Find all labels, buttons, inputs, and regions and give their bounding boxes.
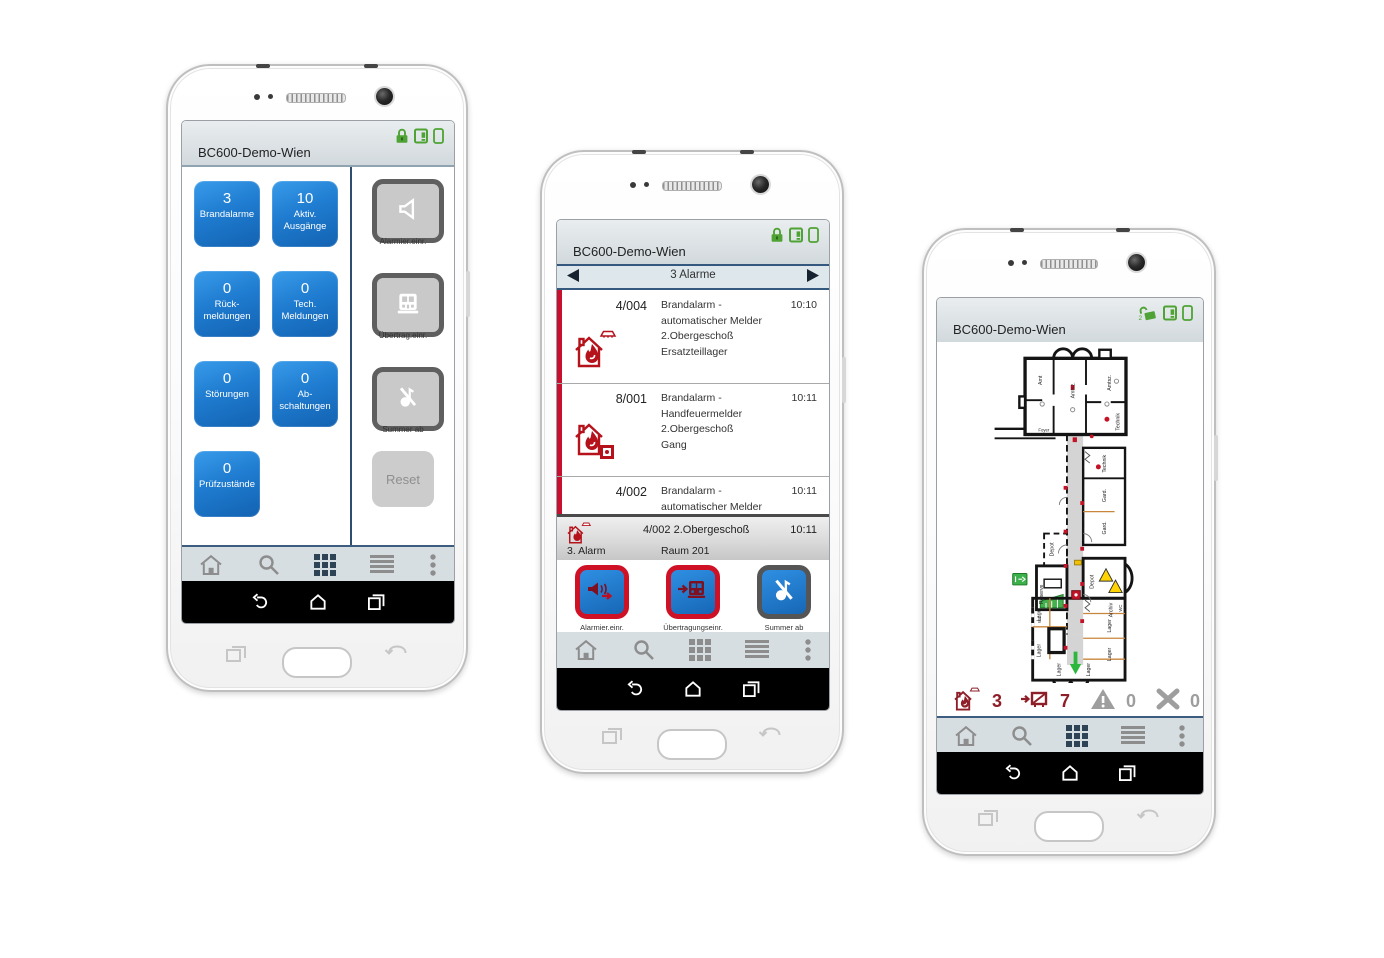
- search-icon[interactable]: [1010, 724, 1034, 748]
- earpiece-speaker: [662, 181, 722, 191]
- room-label: Foyer: [1038, 428, 1049, 433]
- detail-location: 4/002 2.Obergeschoß: [643, 524, 749, 536]
- android-navigation-bar: [182, 581, 454, 623]
- home-icon[interactable]: [198, 553, 224, 577]
- recents-key: [600, 726, 624, 746]
- room-label: Lager: [1036, 644, 1042, 658]
- overflow-menu-icon[interactable]: [428, 553, 438, 577]
- back-key: [384, 644, 410, 662]
- alarm-pager: 3 Alarme: [557, 264, 829, 290]
- app-title: BC600-Demo-Wien: [953, 322, 1066, 337]
- bottom-toolbar: [557, 632, 829, 668]
- room-label: Depot: [1050, 542, 1056, 556]
- grid-view-icon[interactable]: [313, 553, 337, 577]
- alarmier-einr-label: Alarmier.einr.: [358, 237, 448, 246]
- antenna-band: [632, 150, 646, 154]
- room-label: Lager: [1056, 663, 1062, 677]
- phone3-screen: BC600-Demo-Wien 2: [936, 297, 1204, 795]
- light-sensor: [268, 94, 273, 99]
- transmission-device-icon: [394, 290, 422, 321]
- buzzer-off-icon: [395, 384, 421, 415]
- antenna-band: [256, 64, 270, 68]
- antenna-band: [1116, 228, 1130, 232]
- proximity-sensor: [1008, 260, 1014, 266]
- lock-open-icon: 2: [1138, 305, 1158, 326]
- app-header: BC600-Demo-Wien: [182, 121, 454, 167]
- front-camera: [376, 88, 393, 105]
- room-label: Archiv: [1109, 602, 1115, 617]
- home-icon[interactable]: [1060, 763, 1080, 783]
- recents-key: [976, 808, 1000, 828]
- android-navigation-bar: [557, 668, 829, 710]
- pager-title: 3 Alarme: [557, 269, 829, 281]
- warning-count: 0: [1126, 691, 1136, 712]
- alarm-list-item[interactable]: 4/002 Brandalarm -automatischer Melder 1…: [557, 476, 829, 514]
- home-icon[interactable]: [953, 724, 979, 748]
- room-label: Gard.: [1102, 521, 1108, 534]
- panel-icon: [1163, 305, 1177, 326]
- alarm-list: 4/004 Brandalarm -automatischer Melder 2…: [557, 290, 829, 514]
- back-key: [1136, 808, 1162, 826]
- reset-button[interactable]: Reset: [372, 451, 434, 507]
- lock-closed-icon: [770, 227, 784, 248]
- room-label: Gard.: [1102, 489, 1108, 502]
- alarm-device-active-icon: [585, 575, 619, 610]
- summer-ab-button[interactable]: [757, 565, 811, 619]
- room-label: Lager: [1036, 608, 1042, 622]
- uebertrag-einr-label: Übertrag.einr.: [358, 331, 448, 340]
- phone-icon: [1182, 305, 1193, 326]
- phone-icon: [808, 227, 819, 248]
- panel-divider: [350, 167, 352, 545]
- detail-alarm-number: 3. Alarm: [567, 545, 606, 557]
- tile-pruefzustaende[interactable]: 0 Prüfzustände: [194, 451, 260, 517]
- front-camera: [752, 176, 769, 193]
- app-title: BC600-Demo-Wien: [573, 244, 686, 259]
- app-header: BC600-Demo-Wien: [557, 220, 829, 266]
- power-button: [842, 357, 846, 403]
- home-icon[interactable]: [683, 679, 703, 699]
- back-icon[interactable]: [1003, 763, 1023, 783]
- buzzer-off-icon: [770, 576, 798, 609]
- tile-tech-meldungen[interactable]: 0 Tech.Meldungen: [272, 271, 338, 337]
- phone-mockup-1: BC600-Demo-Wien 3 Brandalarme 10 Aktiv.A…: [166, 64, 468, 692]
- summer-ab-button[interactable]: [372, 367, 444, 431]
- fire-house-callpoint-icon: [573, 421, 621, 468]
- summer-ab-label: Summer ab: [738, 623, 830, 632]
- back-icon[interactable]: [625, 679, 645, 699]
- tile-aktive-ausgaenge[interactable]: 10 Aktiv.Ausgänge: [272, 181, 338, 247]
- proximity-sensor: [254, 94, 260, 100]
- list-view-icon[interactable]: [1120, 724, 1146, 748]
- alarm-id: 8/001: [585, 392, 647, 406]
- home-button-hardware: [657, 729, 727, 760]
- svg-text:2: 2: [1139, 315, 1143, 321]
- back-key: [758, 726, 784, 744]
- room-label: Technik: [1102, 454, 1108, 472]
- phone-mockup-3: BC600-Demo-Wien 2: [922, 228, 1216, 856]
- earpiece-speaker: [286, 93, 346, 103]
- tile-stoerungen[interactable]: 0 Störungen: [194, 361, 260, 427]
- panel-icon: [789, 227, 803, 248]
- transmission-count: 7: [1060, 691, 1070, 712]
- light-sensor: [644, 182, 649, 187]
- app-title: BC600-Demo-Wien: [198, 145, 311, 160]
- light-sensor: [1022, 260, 1027, 265]
- floor-plan-map[interactable]: Amt Amtsz. Amtsz. Foyer Technik Technik …: [937, 342, 1203, 686]
- proximity-sensor: [630, 182, 636, 188]
- floor-plan-svg: Amt Amtsz. Amtsz. Foyer Technik Technik …: [983, 345, 1169, 683]
- overflow-menu-icon[interactable]: [803, 638, 813, 662]
- antenna-band: [740, 150, 754, 154]
- alarm-device-icon: [393, 196, 423, 227]
- room-label: Lager: [1086, 663, 1092, 677]
- tile-label: Brandalarme: [200, 209, 254, 220]
- lock-closed-icon: [395, 128, 409, 149]
- antenna-band: [1010, 228, 1024, 232]
- alarm-id: 4/002: [585, 485, 647, 499]
- earpiece-speaker: [1040, 259, 1098, 269]
- cross-icon: [1155, 687, 1181, 716]
- home-button-hardware: [282, 647, 352, 678]
- alarm-description: Brandalarm -Handfeuermelder 2.Obergescho…: [661, 392, 742, 454]
- transmission-active-icon: [1019, 687, 1051, 716]
- tile-value: 10: [272, 190, 338, 207]
- fire-alarm-icon: [953, 686, 983, 717]
- recents-key: [224, 644, 248, 664]
- power-button: [466, 271, 470, 317]
- phone-icon: [433, 128, 444, 149]
- power-button: [1214, 435, 1218, 481]
- alarm-time: 10:11: [792, 392, 818, 404]
- room-label: Amtsz.: [1071, 382, 1077, 398]
- detail-time: 10:11: [790, 524, 817, 536]
- alarm-summary-bar: 3 7 0 0: [937, 686, 1203, 716]
- warning-icon: [1089, 687, 1117, 716]
- grid-view-icon[interactable]: [688, 638, 712, 662]
- bottom-toolbar: [182, 545, 454, 583]
- tile-rueckmeldungen[interactable]: 0 Rück-meldungen: [194, 271, 260, 337]
- room-label: Technik: [1115, 413, 1121, 431]
- alarm-list-item[interactable]: 8/001 Brandalarm -Handfeuermelder 2.Ober…: [557, 383, 829, 477]
- phone1-screen: BC600-Demo-Wien 3 Brandalarme 10 Aktiv.A…: [181, 120, 455, 624]
- alarm-description: Brandalarm -automatischer Melder 2.Oberg…: [661, 299, 762, 361]
- recents-icon[interactable]: [1117, 763, 1137, 783]
- uebertragungseinr-aktiv-button[interactable]: [666, 565, 720, 619]
- home-button-hardware: [1034, 811, 1104, 842]
- recents-icon[interactable]: [741, 679, 761, 699]
- app-header: BC600-Demo-Wien 2: [937, 298, 1203, 344]
- detail-room: Raum 201: [661, 545, 709, 557]
- panel-icon: [414, 128, 428, 149]
- room-label: WC: [1118, 604, 1123, 611]
- alarm-description: Brandalarm -automatischer Melder: [661, 485, 762, 514]
- cross-count: 0: [1190, 691, 1200, 712]
- tile-brandalarme[interactable]: 3 Brandalarme: [194, 181, 260, 247]
- room-label: Amtsz.: [1107, 375, 1113, 391]
- recents-icon[interactable]: [366, 592, 386, 612]
- room-label: Lager: [1107, 619, 1113, 633]
- home-icon[interactable]: [308, 592, 328, 612]
- fire-house-detector-icon: [573, 328, 621, 375]
- search-icon[interactable]: [632, 638, 656, 662]
- overflow-menu-icon[interactable]: [1177, 724, 1187, 748]
- alarm-id: 4/004: [585, 299, 647, 313]
- room-label: Depot: [1090, 574, 1096, 588]
- front-camera: [1128, 254, 1145, 271]
- transmission-device-active-icon: [676, 575, 710, 610]
- back-icon[interactable]: [250, 592, 270, 612]
- home-icon[interactable]: [573, 638, 599, 662]
- uebertrag-einr-button[interactable]: [372, 273, 444, 337]
- summer-ab-label: Summer ab: [358, 425, 448, 434]
- tile-abschaltungen[interactable]: 0 Ab-schaltungen: [272, 361, 338, 427]
- tile-value: 3: [194, 190, 260, 207]
- phone-mockup-2: BC600-Demo-Wien 3 Alarme 4/004 Brandalar…: [540, 150, 844, 774]
- next-page-arrow[interactable]: [805, 268, 821, 283]
- room-label: Reserve: [1039, 584, 1045, 604]
- antenna-band: [364, 64, 378, 68]
- desktop-background: BC600-Demo-Wien 3 Brandalarme 10 Aktiv.A…: [0, 0, 1384, 958]
- list-view-icon[interactable]: [744, 638, 770, 662]
- bottom-toolbar: [937, 716, 1203, 754]
- fire-alarm-count: 3: [992, 691, 1002, 712]
- list-view-icon[interactable]: [369, 553, 395, 577]
- alarmier-einr-aktiv-button[interactable]: [575, 565, 629, 619]
- alarm-list-item[interactable]: 4/004 Brandalarm -automatischer Melder 2…: [557, 290, 829, 384]
- search-icon[interactable]: [257, 553, 281, 577]
- alarm-time: 10:10: [791, 299, 817, 311]
- phone2-screen: BC600-Demo-Wien 3 Alarme 4/004 Brandalar…: [556, 219, 830, 711]
- room-label: Lager: [1107, 647, 1113, 661]
- alarm-time: 10:11: [792, 485, 818, 497]
- alarmier-einr-button[interactable]: [372, 179, 444, 243]
- room-label: Amt: [1038, 375, 1044, 385]
- android-navigation-bar: [937, 752, 1203, 794]
- action-button-row: Alarmier.einr.aktiv. Übertragungseinr.ak…: [557, 560, 829, 634]
- grid-view-icon[interactable]: [1065, 724, 1089, 748]
- dashboard: 3 Brandalarme 10 Aktiv.Ausgänge 0 Rück-m…: [182, 167, 454, 545]
- current-alarm-detail-bar[interactable]: 4/002 2.Obergeschoß 10:11 3. Alarm Raum …: [557, 514, 829, 564]
